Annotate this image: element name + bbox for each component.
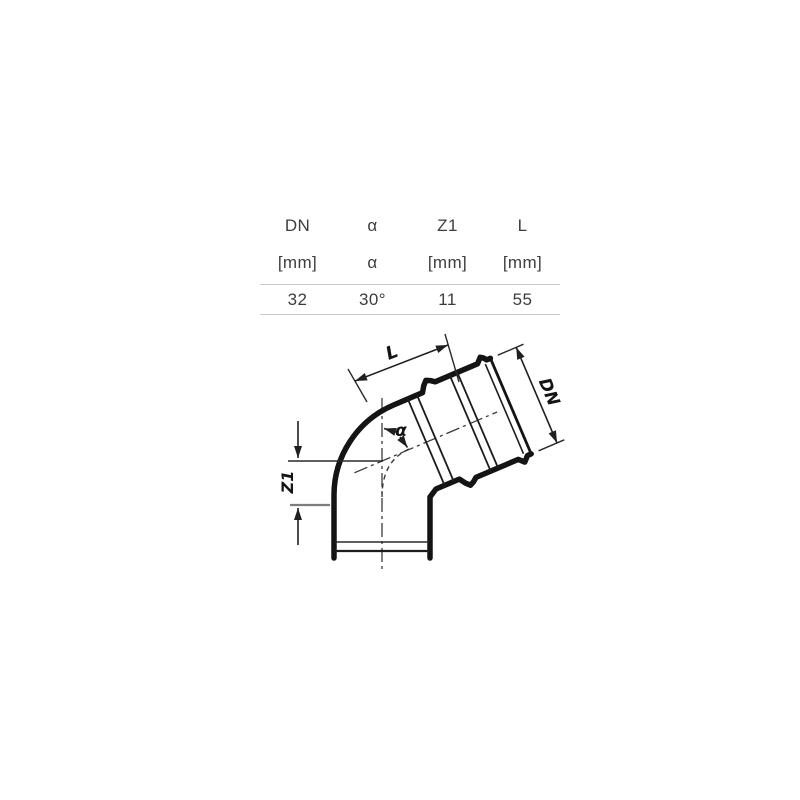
socket-ring-line-1 [408, 399, 445, 485]
gasket-groove-line-1 [450, 376, 491, 472]
alpha-label: α [395, 421, 407, 441]
dim-l-line [355, 345, 448, 381]
socket-mouth-face [490, 358, 531, 454]
dimension-L: L [348, 334, 459, 402]
dimension-alpha: α [384, 421, 408, 448]
dimension-Z1: Z1 [278, 421, 383, 545]
elbow-outline-bottom-right [430, 454, 531, 558]
elbow-outline-left-top [334, 357, 490, 558]
centerlines [354, 398, 497, 570]
dim-dn-extension-bottom [539, 440, 565, 451]
gasket-groove-line-2 [457, 372, 498, 468]
dim-z1-label: Z1 [278, 471, 297, 495]
technical-drawing: L DN Z1 α [0, 0, 800, 800]
socket-ring-line-2 [417, 395, 454, 481]
elbow-fitting [334, 357, 531, 558]
dim-l-extension-left [348, 369, 367, 402]
dim-l-label: L [383, 341, 401, 365]
dim-dn-label: DN [534, 375, 563, 409]
socket-mouth-inner-line [486, 365, 524, 453]
bend-axis-arc [382, 449, 409, 497]
